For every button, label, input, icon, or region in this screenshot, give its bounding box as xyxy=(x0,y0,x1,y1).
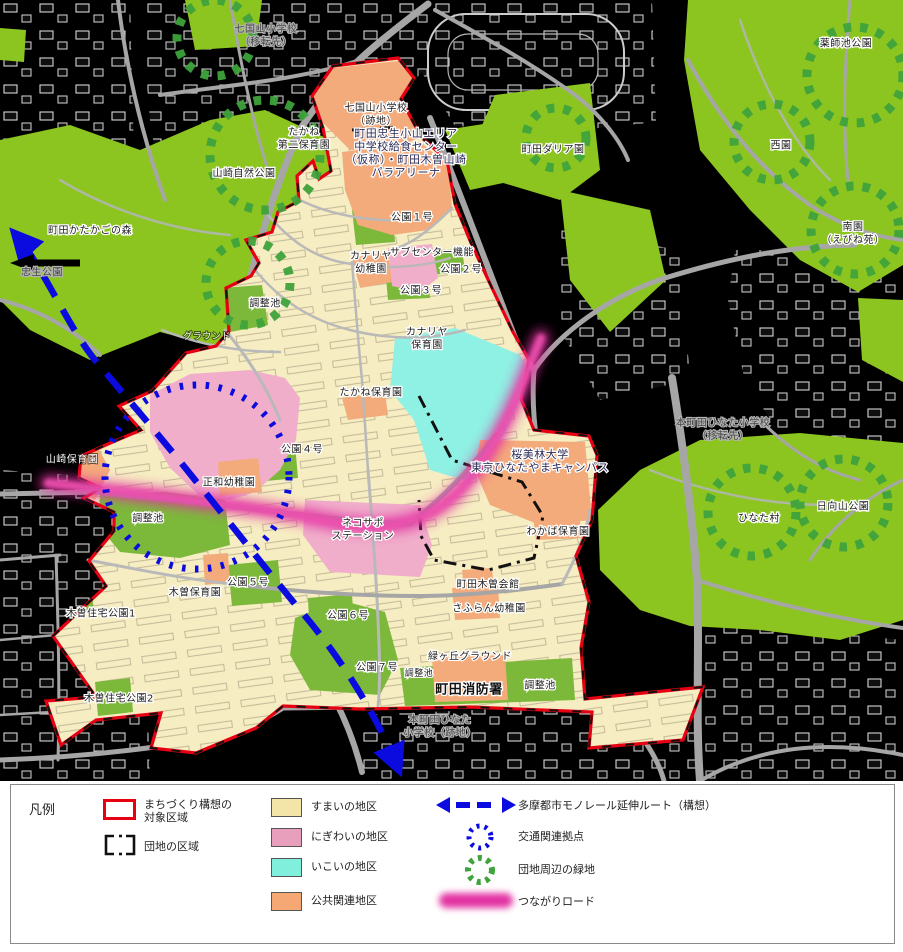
map-label-machida-katakago-no-mori: 町田かたかごの森 xyxy=(48,224,132,237)
map-label-chosei-ike-center: 調整池 xyxy=(132,512,164,525)
legend-label-target-area: まちづくり構想の 対象区域 xyxy=(144,799,232,824)
map-label-nishien: 西園 xyxy=(771,140,792,152)
map-label-koen-2: 公園２号 xyxy=(440,264,482,276)
legend-symbol-greenery xyxy=(463,853,497,887)
map-label-tadao-koen: 忠生公園 xyxy=(21,266,63,279)
map-label-kiso-hoikuen: 木曽保育園 xyxy=(169,586,222,599)
legend-swatch-danchi-area xyxy=(103,833,137,857)
legend-label-ikoi: いこいの地区 xyxy=(311,861,377,874)
map-label-yamazaki-shizen-koen: 山崎自然公園 xyxy=(213,167,276,180)
legend-swatch-nigiwai xyxy=(271,828,302,847)
map-label-wakaba-hoikuen: わかば保育園 xyxy=(527,525,590,538)
map-label-koen-3: 公園３号 xyxy=(400,285,442,297)
legend-label-tsunagari: つながりロード xyxy=(518,896,595,909)
map-label-machida-kiso-kaikan: 町田木曽会館 xyxy=(457,578,520,591)
legend-symbol-tsunagari xyxy=(439,893,513,908)
map-label-koen-6: 公園６号 xyxy=(327,610,369,622)
map-label-safuran-yochien: さふらん幼稚園 xyxy=(452,602,526,615)
map-canvas: 七国山小学校（移転先）七国山小学校（跡地）山崎自然公園町田かたかごの森忠生公園調… xyxy=(0,0,903,781)
map-label-takane-hoikuen: たかね保育園 xyxy=(340,386,403,399)
legend-swatch-ikoi xyxy=(271,858,302,877)
map-label-kiso-jutaku-koen-2: 木曽住宅公園2 xyxy=(84,692,154,705)
machida-kiso-yamazaki-danchi-plan-map: 七国山小学校（移転先）七国山小学校（跡地）山崎自然公園町田かたかごの森忠生公園調… xyxy=(0,0,903,952)
map-label-yamazaki-hoikuen: 山崎保育園 xyxy=(46,453,99,466)
map-label-hinatayama-koen: 日向山公園 xyxy=(817,500,870,513)
legend-title: 凡例 xyxy=(29,799,55,818)
legend-label-monorail: 多摩都市モノレール延伸ルート（構想） xyxy=(518,800,716,813)
legend-label-kokyo: 公共関連地区 xyxy=(311,895,377,908)
legend-label-sumai: すまいの地区 xyxy=(311,801,377,814)
legend-label-hub: 交通関連拠点 xyxy=(518,831,584,844)
legend-symbol-monorail xyxy=(434,794,518,816)
map-label-yakushiike-koen: 薬師池公園 xyxy=(820,37,873,50)
map-label-chosei-ike-north: 調整池 xyxy=(249,297,281,310)
legend-swatch-kokyo xyxy=(271,892,302,911)
legend-symbol-hub xyxy=(464,821,496,853)
legend-label-nigiwai: にぎわいの地区 xyxy=(311,831,388,844)
map-svg: 七国山小学校（移転先）七国山小学校（跡地）山崎自然公園町田かたかごの森忠生公園調… xyxy=(0,0,903,781)
map-label-ground: グラウンド xyxy=(183,330,231,342)
map-label-hinatamura: ひなた村 xyxy=(738,512,780,525)
map-label-kiso-jutaku-koen-1: 木曽住宅公園1 xyxy=(66,607,136,620)
map-label-koen-7: 公園７号 xyxy=(356,662,398,674)
map-label-seiwa-yochien: 正和幼稚園 xyxy=(203,476,256,489)
legend-swatch-sumai xyxy=(271,798,302,817)
map-label-machida-dahlia-en: 町田ダリア園 xyxy=(522,143,585,156)
map-label-machida-shobosho: 町田消防署 xyxy=(435,682,503,698)
map-label-koen-4: 公園４号 xyxy=(281,444,323,456)
map-label-koen-1: 公園１号 xyxy=(391,212,433,224)
map-label-chosei-ike-small: 調整池 xyxy=(405,667,434,679)
legend-swatch-target-area xyxy=(103,799,136,820)
map-label-koen-5: 公園５号 xyxy=(227,577,269,589)
map-label-midorigaoka-ground: 緑ヶ丘グラウンド xyxy=(428,650,512,663)
legend-label-greenery: 団地周辺の緑地 xyxy=(518,864,595,877)
map-label-subcenter-kino: サブセンター機能 xyxy=(390,246,474,259)
map-label-chosei-ike-east: 調整池 xyxy=(524,679,556,692)
legend-label-danchi-area: 団地の区域 xyxy=(144,841,199,854)
legend-panel: 凡例 まちづくり構想の 対象区域 団地の区域 すまいの地区 にぎわいの地区 いこ… xyxy=(10,784,895,944)
